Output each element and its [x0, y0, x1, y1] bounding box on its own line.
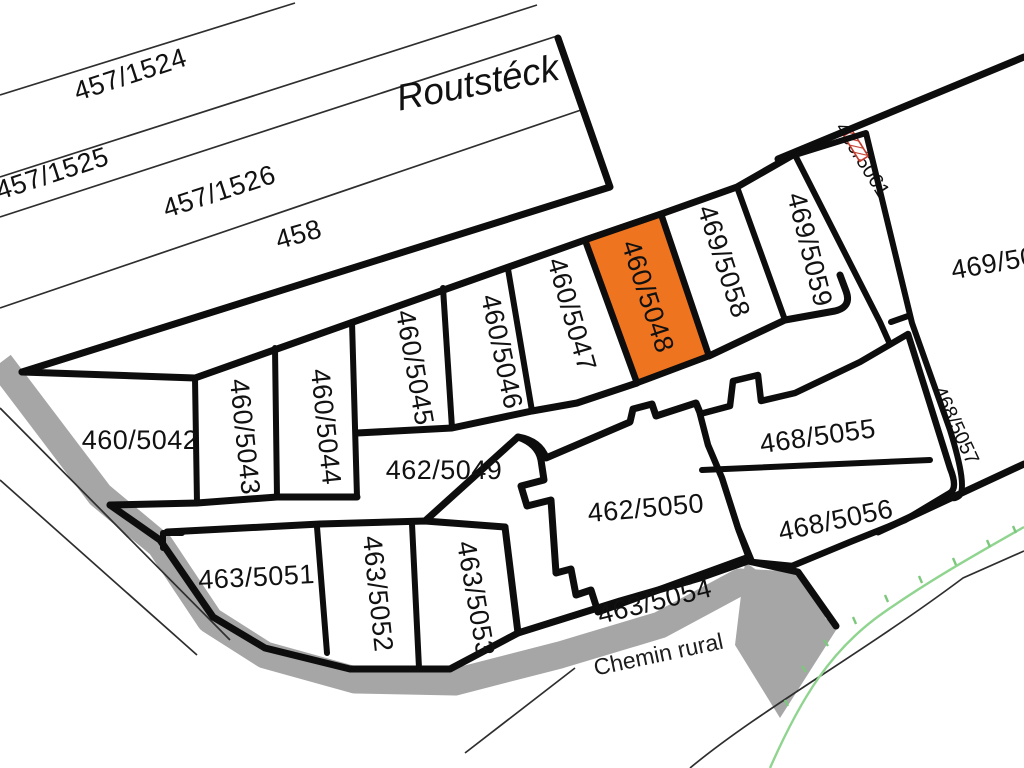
divider-5043-5044 — [275, 348, 277, 497]
parcel-label-462-5049: 462/5049 — [386, 455, 503, 485]
parcel-label-460-5042: 460/5042 — [82, 425, 199, 455]
cadastral-map: 469/5061 468/5057 — [0, 0, 1024, 768]
parcel-label-463-5051: 463/5051 — [198, 559, 316, 595]
cadastral-map-canvas: 469/5061 468/5057 — [0, 0, 1024, 768]
